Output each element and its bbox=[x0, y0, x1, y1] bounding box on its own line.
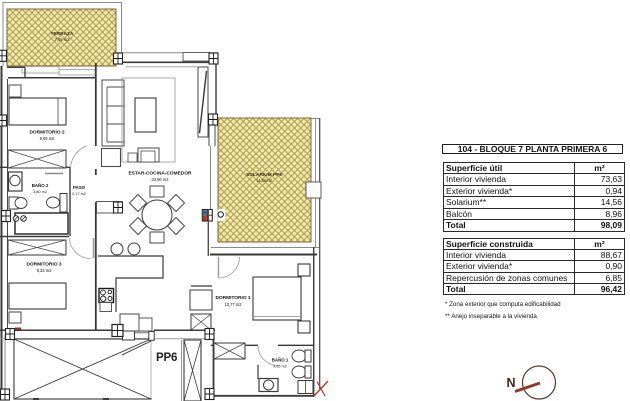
svg-text:N: N bbox=[507, 376, 516, 390]
svg-text:BAÑO 1: BAÑO 1 bbox=[272, 358, 289, 363]
svg-text:DORMITORIO 1: DORMITORIO 1 bbox=[215, 295, 250, 301]
svg-text:9,33 m2: 9,33 m2 bbox=[37, 268, 53, 273]
svg-text:7,95 m2: 7,95 m2 bbox=[55, 37, 71, 42]
svg-text:ESTAR-COCINA-COMEDOR: ESTAR-COCINA-COMEDOR bbox=[128, 171, 192, 177]
svg-text:9,09 m2: 9,09 m2 bbox=[40, 136, 56, 141]
svg-text:PASO: PASO bbox=[73, 185, 86, 190]
svg-text:4,95 m2: 4,95 m2 bbox=[273, 365, 287, 369]
svg-text:14,56m2: 14,56m2 bbox=[256, 178, 273, 183]
svg-text:DORMITORIO 3: DORMITORIO 3 bbox=[26, 262, 61, 268]
svg-text:PP6: PP6 bbox=[156, 352, 177, 364]
svg-text:2,17 m2: 2,17 m2 bbox=[72, 192, 86, 196]
svg-text:DORMITORIO 2: DORMITORIO 2 bbox=[29, 130, 64, 136]
svg-text:BAÑO 2: BAÑO 2 bbox=[32, 183, 49, 188]
svg-text:33,90 m2: 33,90 m2 bbox=[151, 177, 169, 182]
svg-text:10,77 m2: 10,77 m2 bbox=[224, 302, 242, 307]
svg-text:3,80 m2: 3,80 m2 bbox=[33, 190, 47, 194]
